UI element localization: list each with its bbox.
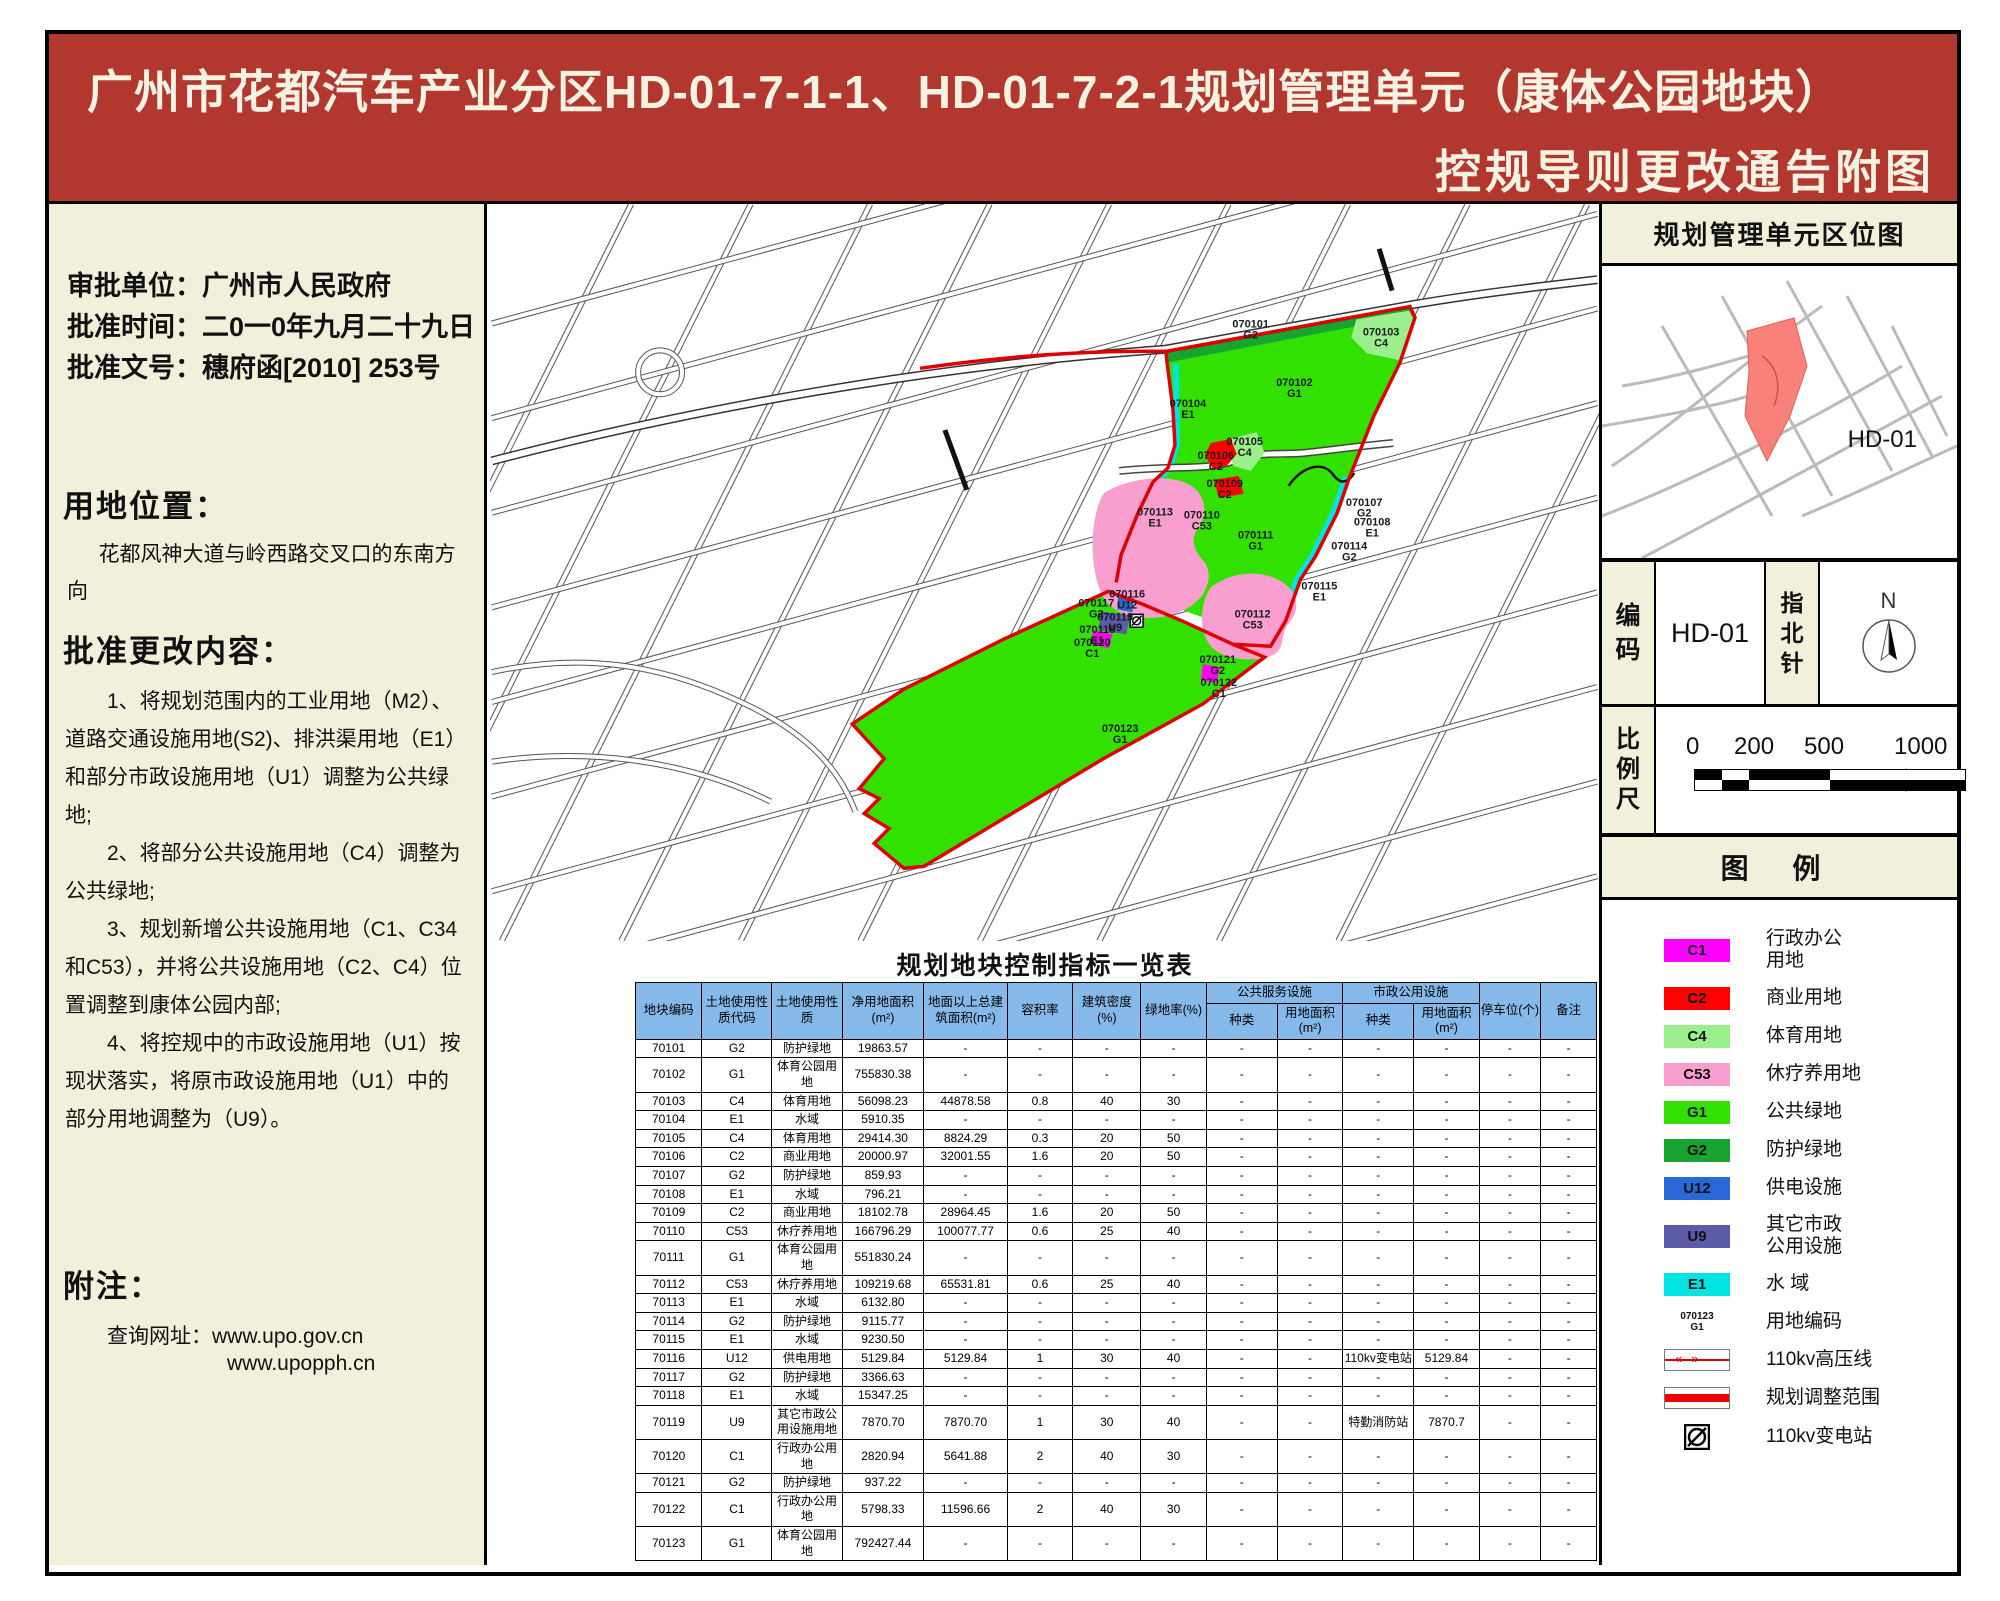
legend-item-substation: 110kv变电站: [1664, 1424, 1957, 1450]
table-cell: -: [1141, 1167, 1206, 1186]
table-cell: -: [1007, 1167, 1072, 1186]
table-row: 70112C53休疗养用地109219.6865531.810.62540---…: [636, 1275, 1597, 1294]
legend-label: 体育用地: [1766, 1025, 1842, 1047]
change-item-1: 1、将规划范围内的工业用地（M2）、道路交通设施用地(S2)、排洪渠用地（E1）…: [65, 683, 468, 835]
table-cell: -: [1343, 1331, 1414, 1350]
table-cell: -: [1343, 1312, 1414, 1331]
legend-label: 防护绿地: [1766, 1139, 1842, 1161]
table-cell: -: [1206, 1349, 1277, 1368]
table-cell: 551830.24: [842, 1241, 924, 1275]
table-cell: -: [1141, 1387, 1206, 1406]
table-cell: -: [1007, 1387, 1072, 1406]
table-cell: -: [1206, 1148, 1277, 1167]
code-value: HD-01: [1656, 562, 1766, 704]
table-cell: 行政办公用地: [772, 1492, 842, 1526]
table-cell: 70118: [636, 1387, 702, 1406]
table-row: 70101G2防护绿地19863.57----------: [636, 1039, 1597, 1058]
table-cell: 70120: [636, 1439, 702, 1473]
scale-bar: [1694, 769, 1966, 791]
location-text: 花都风神大道与岭西路交叉口的东南方向: [67, 536, 466, 610]
table-cell: E1: [702, 1111, 772, 1130]
table-cell: -: [1541, 1474, 1597, 1493]
table-cell: -: [1073, 1039, 1141, 1058]
banner-title-line1: 广州市花都汽车产业分区HD-01-7-1-1、HD-01-7-2-1规划管理单元…: [87, 56, 1842, 122]
table-cell: G2: [702, 1368, 772, 1387]
table-row: 70114G2防护绿地9115.77----------: [636, 1312, 1597, 1331]
table-cell: -: [924, 1167, 1008, 1186]
changes-list: 1、将规划范围内的工业用地（M2）、道路交通设施用地(S2)、排洪渠用地（E1）…: [49, 683, 484, 1139]
table-cell: -: [924, 1111, 1008, 1130]
table-cell: 体育公园用地: [772, 1058, 842, 1092]
plan-map-svg: 070101G2070102G1070103C4070104E1070105C4…: [490, 204, 1599, 941]
table-cell: -: [1414, 1185, 1479, 1204]
table-cell: -: [1414, 1039, 1479, 1058]
table-cell: -: [1541, 1167, 1597, 1186]
table-cell: E1: [702, 1185, 772, 1204]
table-cell: 1.6: [1007, 1204, 1072, 1223]
legend-item-code-sample: 070123 G1用地编码: [1664, 1310, 1957, 1334]
table-cell: 937.22: [842, 1474, 924, 1493]
north-arrow-icon: [1857, 614, 1921, 678]
table-cell: 其它市政公用设施用地: [772, 1405, 842, 1439]
table-cell: -: [1541, 1222, 1597, 1241]
table-cell: -: [1541, 1039, 1597, 1058]
table-cell: -: [1277, 1222, 1342, 1241]
table-cell: 70115: [636, 1331, 702, 1350]
table-cell: 水域: [772, 1294, 842, 1313]
table-cell: 行政办公用地: [772, 1439, 842, 1473]
table-cell: -: [1343, 1294, 1414, 1313]
table-row: 70104E1水域5910.35----------: [636, 1111, 1597, 1130]
table-cell: -: [1479, 1439, 1541, 1473]
table-row: 70108E1水域796.21----------: [636, 1185, 1597, 1204]
table-cell: -: [1277, 1405, 1342, 1439]
table-cell: -: [1414, 1167, 1479, 1186]
table-cell: -: [924, 1368, 1008, 1387]
table-row: 70109C2商业用地18102.7828964.451.62050------: [636, 1204, 1597, 1223]
table-cell: -: [1206, 1222, 1277, 1241]
legend-label: 110kv变电站: [1766, 1426, 1872, 1448]
table-cell: -: [1277, 1492, 1342, 1526]
table-cell: 70111: [636, 1241, 702, 1275]
table-cell: 1: [1007, 1349, 1072, 1368]
table-cell: 0.6: [1007, 1275, 1072, 1294]
table-cell: 70104: [636, 1111, 702, 1130]
table-cell: -: [1479, 1349, 1541, 1368]
table-cell: 0.3: [1007, 1129, 1072, 1148]
table-cell: -: [1277, 1349, 1342, 1368]
compass-n: N: [1881, 588, 1897, 614]
code-and-compass-row: 编 码 HD-01 指 北 针 N: [1602, 562, 1957, 707]
table-cell: 70103: [636, 1092, 702, 1111]
outer-frame: 广州市花都汽车产业分区HD-01-7-1-1、HD-01-7-2-1规划管理单元…: [45, 30, 1961, 1576]
info-panel: 审批单位：广州市人民政府 批准时间：二0一0年九月二十九日 批准文号：穗府函[2…: [49, 204, 487, 1565]
table-cell: -: [1343, 1492, 1414, 1526]
table-body: 70101G2防护绿地19863.57----------70102G1体育公园…: [636, 1039, 1597, 1560]
table-cell: 0.8: [1007, 1092, 1072, 1111]
change-item-3: 3、规划新增公共设施用地（C1、C34和C53），并将公共设施用地（C2、C4）…: [65, 911, 468, 1025]
table-cell: -: [1479, 1204, 1541, 1223]
col-subheader: 种类: [1206, 1003, 1277, 1039]
table-cell: -: [1007, 1368, 1072, 1387]
col-header: 净用地面积(m²): [842, 983, 924, 1040]
mini-map-svg: [1602, 266, 1957, 558]
table-cell: 防护绿地: [772, 1474, 842, 1493]
col-header: 地面以上总建筑面积(m²): [924, 983, 1008, 1040]
table-cell: 40: [1073, 1439, 1141, 1473]
table-cell: -: [1206, 1039, 1277, 1058]
table-row: 70106C2商业用地20000.9732001.551.62050------: [636, 1148, 1597, 1167]
table-cell: 特勤消防站: [1343, 1405, 1414, 1439]
table-cell: -: [1073, 1368, 1141, 1387]
table-cell: E1: [702, 1294, 772, 1313]
table-cell: -: [1277, 1368, 1342, 1387]
table-cell: -: [1206, 1526, 1277, 1560]
table-cell: -: [1343, 1204, 1414, 1223]
table-cell: -: [1343, 1092, 1414, 1111]
col-header: 绿地率(%): [1141, 983, 1206, 1040]
compass: N: [1820, 562, 1957, 704]
table-cell: -: [1206, 1129, 1277, 1148]
table-row: 70121G2防护绿地937.22----------: [636, 1474, 1597, 1493]
table-cell: -: [924, 1039, 1008, 1058]
table-cell: U12: [702, 1349, 772, 1368]
table-cell: 25: [1073, 1222, 1141, 1241]
table-cell: 40: [1141, 1222, 1206, 1241]
table-cell: -: [1073, 1185, 1141, 1204]
table-cell: -: [1479, 1331, 1541, 1350]
table-cell: -: [924, 1331, 1008, 1350]
table-cell: -: [1414, 1312, 1479, 1331]
table-cell: -: [1479, 1058, 1541, 1092]
table-cell: -: [924, 1312, 1008, 1331]
table-cell: 30: [1141, 1492, 1206, 1526]
table-cell: 40: [1073, 1492, 1141, 1526]
table-cell: -: [924, 1474, 1008, 1493]
table-cell: -: [1141, 1368, 1206, 1387]
table-cell: -: [1206, 1387, 1277, 1406]
table-cell: -: [1414, 1129, 1479, 1148]
table-cell: -: [1007, 1294, 1072, 1313]
scale-tick-500: 500: [1804, 733, 1844, 761]
table-cell: 50: [1141, 1148, 1206, 1167]
table-cell: 20: [1073, 1148, 1141, 1167]
adjust-range-icon: [1664, 1387, 1730, 1409]
table-cell: 1.6: [1007, 1148, 1072, 1167]
location-heading: 用地位置：: [63, 481, 484, 526]
table-cell: 70119: [636, 1405, 702, 1439]
plan-map: 070101G2070102G1070103C4070104E1070105C4…: [490, 204, 1599, 941]
parcel-label-070108: 070108E1: [1354, 517, 1391, 540]
change-item-4: 4、将控规中的市政设施用地（U1）按现状落实，将原市政设施用地（U1）中的部分用…: [65, 1025, 468, 1139]
table-cell: 5129.84: [842, 1349, 924, 1368]
approval-block: 审批单位：广州市人民政府 批准时间：二0一0年九月二十九日 批准文号：穗府函[2…: [67, 266, 484, 389]
table-cell: -: [1277, 1439, 1342, 1473]
col-header: 公共服务设施: [1206, 983, 1342, 1004]
table-cell: -: [1277, 1331, 1342, 1350]
table-cell: 70106: [636, 1148, 702, 1167]
legend-item-adjust-range: 规划调整范围: [1664, 1386, 1957, 1410]
table-cell: -: [1206, 1241, 1277, 1275]
table-cell: 2: [1007, 1492, 1072, 1526]
table-cell: -: [1541, 1368, 1597, 1387]
col-header: 容积率: [1007, 983, 1072, 1040]
table-cell: 40: [1141, 1275, 1206, 1294]
table-cell: -: [1343, 1167, 1414, 1186]
table-cell: C53: [702, 1222, 772, 1241]
table-cell: -: [1541, 1185, 1597, 1204]
scale-bar-area: 0 200 500 1000米: [1656, 707, 1957, 833]
table-cell: C1: [702, 1439, 772, 1473]
table-row: 70107G2防护绿地859.93----------: [636, 1167, 1597, 1186]
table-cell: 体育公园用地: [772, 1526, 842, 1560]
table-cell: -: [1141, 1474, 1206, 1493]
table-cell: 水域: [772, 1387, 842, 1406]
table-cell: 供电用地: [772, 1349, 842, 1368]
table-row: 70120C1行政办公用地2820.945641.8824030------: [636, 1439, 1597, 1473]
banner-title-line2: 控规导则更改通告附图: [1435, 136, 1935, 202]
table-cell: -: [1414, 1222, 1479, 1241]
table-row: 70102G1体育公园用地755830.38----------: [636, 1058, 1597, 1092]
legend-swatch-C2: C2: [1664, 987, 1730, 1010]
scale-tick-200: 200: [1734, 733, 1774, 761]
control-indicator-table: 地块编码土地使用性质代码土地使用性质净用地面积(m²)地面以上总建筑面积(m²)…: [635, 982, 1597, 1561]
col-header: 停车位(个): [1479, 983, 1541, 1040]
table-cell: -: [1277, 1312, 1342, 1331]
table-cell: -: [1206, 1058, 1277, 1092]
legend-item-C4: C4体育用地: [1664, 1024, 1957, 1048]
table-cell: -: [1343, 1148, 1414, 1167]
table-cell: 109219.68: [842, 1275, 924, 1294]
table-cell: 3366.63: [842, 1368, 924, 1387]
mini-map-unit-label: HD-01: [1848, 426, 1917, 454]
table-cell: -: [1277, 1111, 1342, 1130]
table-cell: 70121: [636, 1474, 702, 1493]
table-cell: G1: [702, 1058, 772, 1092]
table-cell: -: [1141, 1526, 1206, 1560]
query-url-1: 查询网址：www.upo.gov.cn: [107, 1320, 484, 1350]
legend-label: 110kv高压线: [1766, 1349, 1872, 1371]
table-cell: -: [1541, 1439, 1597, 1473]
table-cell: -: [1073, 1312, 1141, 1331]
table-cell: -: [1277, 1148, 1342, 1167]
table-cell: -: [1073, 1387, 1141, 1406]
table-cell: -: [1414, 1439, 1479, 1473]
table-cell: -: [1007, 1058, 1072, 1092]
table-cell: -: [1479, 1241, 1541, 1275]
table-cell: -: [1073, 1474, 1141, 1493]
table-cell: -: [1007, 1185, 1072, 1204]
table-cell: -: [1343, 1185, 1414, 1204]
table-cell: 70117: [636, 1368, 702, 1387]
table-cell: -: [1479, 1294, 1541, 1313]
table-cell: 7870.70: [924, 1405, 1008, 1439]
code-label: 编 码: [1602, 562, 1656, 704]
table-cell: -: [924, 1185, 1008, 1204]
table-cell: 50: [1141, 1129, 1206, 1148]
table-cell: -: [1343, 1387, 1414, 1406]
map-and-table-panel: 070101G2070102G1070103C4070104E1070105C4…: [490, 204, 1599, 1565]
table-cell: 792427.44: [842, 1526, 924, 1560]
col-subheader: 种类: [1343, 1003, 1414, 1039]
table-cell: 50: [1141, 1204, 1206, 1223]
table-cell: G2: [702, 1474, 772, 1493]
legend-swatch-G1: G1: [1664, 1101, 1730, 1124]
table-cell: -: [1414, 1111, 1479, 1130]
table-cell: -: [1073, 1058, 1141, 1092]
col-header: 建筑密度(%): [1073, 983, 1141, 1040]
table-cell: 6132.80: [842, 1294, 924, 1313]
table-cell: -: [1343, 1222, 1414, 1241]
table-cell: -: [1141, 1058, 1206, 1092]
table-cell: 30: [1073, 1349, 1141, 1368]
table-cell: -: [1007, 1241, 1072, 1275]
table-cell: -: [1073, 1294, 1141, 1313]
table-cell: U9: [702, 1405, 772, 1439]
table-cell: -: [1479, 1092, 1541, 1111]
table-cell: -: [1479, 1312, 1541, 1331]
legend-label: 水 域: [1766, 1273, 1809, 1295]
table-cell: -: [1414, 1294, 1479, 1313]
table-cell: 65531.81: [924, 1275, 1008, 1294]
road-network: [490, 204, 1599, 941]
table-cell: 8824.29: [924, 1129, 1008, 1148]
hv-line-icon: «—»: [1664, 1349, 1730, 1371]
table-cell: 9115.77: [842, 1312, 924, 1331]
table-cell: 25: [1073, 1275, 1141, 1294]
table-cell: -: [1541, 1312, 1597, 1331]
table-cell: 19863.57: [842, 1039, 924, 1058]
table-cell: 体育公园用地: [772, 1241, 842, 1275]
table-cell: -: [1541, 1331, 1597, 1350]
table-cell: 11596.66: [924, 1492, 1008, 1526]
legend-title: 图 例: [1602, 837, 1957, 900]
table-cell: 29414.30: [842, 1129, 924, 1148]
table-cell: -: [1206, 1294, 1277, 1313]
table-cell: -: [1141, 1241, 1206, 1275]
table-cell: 水域: [772, 1111, 842, 1130]
table-cell: -: [1479, 1275, 1541, 1294]
legend-item-C2: C2商业用地: [1664, 986, 1957, 1010]
table-cell: 体育用地: [772, 1129, 842, 1148]
table-cell: C2: [702, 1204, 772, 1223]
table-cell: 70122: [636, 1492, 702, 1526]
table-cell: 70112: [636, 1275, 702, 1294]
table-cell: -: [1479, 1039, 1541, 1058]
table-cell: 防护绿地: [772, 1312, 842, 1331]
col-header: 地块编码: [636, 983, 702, 1040]
table-cell: 70113: [636, 1294, 702, 1313]
changes-heading: 批准更改内容：: [63, 626, 484, 671]
table-cell: C1: [702, 1492, 772, 1526]
table-cell: -: [1277, 1167, 1342, 1186]
table-row: 70117G2防护绿地3366.63----------: [636, 1368, 1597, 1387]
table-cell: 5641.88: [924, 1439, 1008, 1473]
table-cell: -: [1479, 1368, 1541, 1387]
table-cell: 859.93: [842, 1167, 924, 1186]
table-cell: 5129.84: [1414, 1349, 1479, 1368]
table-cell: -: [1277, 1294, 1342, 1313]
legend-item-hv-line: «—»110kv高压线: [1664, 1348, 1957, 1372]
table-cell: -: [1277, 1204, 1342, 1223]
table-cell: 40: [1141, 1349, 1206, 1368]
table-cell: 7870.7: [1414, 1405, 1479, 1439]
parcel-code-sample: 070123 G1: [1664, 1311, 1730, 1333]
col-subheader: 用地面积(m²): [1414, 1003, 1479, 1039]
table-cell: -: [1541, 1349, 1597, 1368]
table-cell: 32001.55: [924, 1148, 1008, 1167]
table-cell: 15347.25: [842, 1387, 924, 1406]
table-cell: 70107: [636, 1167, 702, 1186]
legend-list: C1行政办公 用地C2商业用地C4体育用地C53休疗养用地G1公共绿地G2防护绿…: [1602, 900, 1957, 1450]
legend-item-U9: U9其它市政 公用设施: [1664, 1214, 1957, 1258]
table-cell: 休疗养用地: [772, 1275, 842, 1294]
table-cell: -: [1277, 1474, 1342, 1493]
scale-label: 比 例 尺: [1602, 707, 1656, 833]
legend-item-C53: C53休疗养用地: [1664, 1062, 1957, 1086]
scale-row: 比 例 尺 0 200 500 1000米: [1602, 707, 1957, 837]
table-cell: -: [1541, 1148, 1597, 1167]
table-cell: -: [1541, 1492, 1597, 1526]
legend-label: 休疗养用地: [1766, 1063, 1861, 1085]
approval-date: 批准时间：二0一0年九月二十九日: [67, 307, 484, 348]
table-cell: -: [924, 1526, 1008, 1560]
table-cell: 30: [1073, 1405, 1141, 1439]
table-cell: -: [1541, 1204, 1597, 1223]
table-cell: -: [1541, 1092, 1597, 1111]
approval-doc-no: 批准文号：穗府函[2010] 253号: [67, 348, 484, 389]
table-cell: -: [1141, 1111, 1206, 1130]
table-cell: -: [1343, 1039, 1414, 1058]
table-cell: -: [1206, 1331, 1277, 1350]
table-cell: -: [1541, 1129, 1597, 1148]
legend-label: 商业用地: [1766, 987, 1842, 1009]
notes-heading: 附注：: [63, 1261, 484, 1306]
table-cell: -: [1007, 1526, 1072, 1560]
table-cell: C4: [702, 1092, 772, 1111]
table-cell: -: [1414, 1387, 1479, 1406]
table-cell: -: [1277, 1275, 1342, 1294]
table-cell: 70109: [636, 1204, 702, 1223]
table-cell: -: [1141, 1331, 1206, 1350]
table-cell: -: [1141, 1039, 1206, 1058]
table-cell: -: [1206, 1204, 1277, 1223]
table-cell: -: [1277, 1241, 1342, 1275]
table-cell: 1: [1007, 1405, 1072, 1439]
north-label: 指 北 针: [1766, 562, 1820, 704]
table-cell: 商业用地: [772, 1204, 842, 1223]
table-cell: -: [1277, 1039, 1342, 1058]
table-cell: -: [1206, 1405, 1277, 1439]
location-mini-map: HD-01: [1602, 266, 1957, 562]
table-cell: -: [1414, 1275, 1479, 1294]
table-cell: -: [924, 1058, 1008, 1092]
table-cell: -: [1206, 1167, 1277, 1186]
table-cell: -: [1343, 1368, 1414, 1387]
table-row: 70110C53休疗养用地166796.29100077.770.62540--…: [636, 1222, 1597, 1241]
table-cell: -: [1414, 1058, 1479, 1092]
table-row: 70119U9其它市政公用设施用地7870.707870.7013040--特勤…: [636, 1405, 1597, 1439]
table-cell: 70123: [636, 1526, 702, 1560]
table-cell: -: [1541, 1241, 1597, 1275]
table-cell: -: [1073, 1241, 1141, 1275]
legend-swatch-U9: U9: [1664, 1225, 1730, 1248]
table-cell: -: [1343, 1275, 1414, 1294]
table-cell: -: [1479, 1222, 1541, 1241]
table-cell: 防护绿地: [772, 1039, 842, 1058]
table-cell: -: [1541, 1275, 1597, 1294]
table-cell: 100077.77: [924, 1222, 1008, 1241]
